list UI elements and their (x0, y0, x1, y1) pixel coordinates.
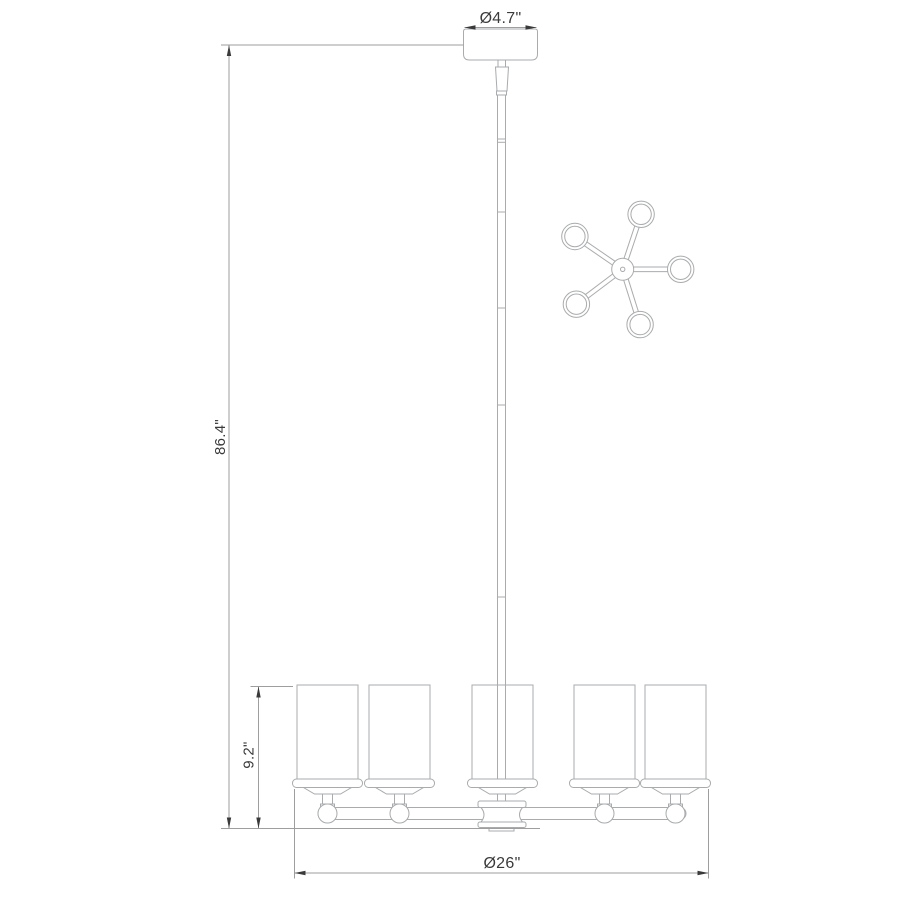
canopy (464, 29, 538, 60)
glass-shade (297, 685, 358, 779)
shade-fitter (581, 788, 629, 795)
down-rod (498, 95, 506, 801)
plan-shade-ring (628, 201, 654, 227)
dimension-label-fixture-diameter: Ø26" (483, 855, 520, 872)
arm-ball-joint (666, 804, 685, 823)
side-view-chandelier (293, 29, 711, 831)
plan-shade-ring (563, 291, 589, 317)
shade-band (570, 779, 640, 788)
shade-fitter (376, 788, 424, 795)
rod-collar (497, 91, 507, 95)
shade-2 (365, 685, 435, 808)
plan-center-hub (612, 258, 634, 280)
socket-stem (395, 794, 405, 805)
plan-shade-ring (627, 311, 653, 337)
hang-straight (496, 67, 509, 91)
hub-bottom-plate (478, 822, 526, 828)
arm-ball-joint (390, 804, 409, 823)
arrowhead-right (698, 871, 709, 875)
canopy-neck (498, 60, 506, 67)
shade-band (641, 779, 711, 788)
arm-ball-joint (318, 804, 337, 823)
hub-spool (481, 808, 523, 823)
dimension-label-overall-height: 86.4" (212, 419, 229, 455)
plan-shade-ring (668, 256, 694, 282)
center-hub (478, 801, 526, 831)
shade-5 (641, 685, 711, 808)
plan-shade-ring (562, 223, 588, 249)
arrowhead-up (227, 45, 231, 56)
arrowhead-up (256, 687, 260, 698)
dimension-label-shade-height: 9.2" (241, 741, 258, 768)
shade-4 (570, 685, 640, 808)
socket-stem (600, 794, 610, 805)
technical-drawing-canvas: Ø4.7" 86.4" 9.2" Ø26" (0, 0, 900, 900)
socket-stem (671, 794, 681, 805)
shade-fitter (652, 788, 700, 795)
shade-fitter (304, 788, 352, 795)
socket-stem (323, 794, 333, 805)
shade-fitter (479, 788, 527, 795)
shade-band (365, 779, 435, 788)
glass-shade (645, 685, 706, 779)
arrowhead-down (256, 818, 260, 829)
dimension-canopy-diameter: Ø4.7" (465, 10, 537, 30)
shade-band (293, 779, 363, 788)
arm-ball-joint (595, 804, 614, 823)
arrowhead-down (227, 818, 231, 829)
glass-shade (369, 685, 430, 779)
canopy-assembly (464, 29, 538, 95)
top-view-plan (562, 201, 694, 338)
glass-shade (574, 685, 635, 779)
shade-band (468, 779, 538, 788)
shade-1 (293, 685, 363, 808)
arrowhead-left (295, 871, 306, 875)
dimension-shade-height: 9.2" (241, 687, 294, 829)
hub-top-plate (478, 801, 526, 808)
dimension-overall-height: 86.4" (212, 45, 540, 829)
shade-3-center (468, 685, 538, 801)
dimension-label-canopy-diameter: Ø4.7" (480, 10, 522, 27)
glass-shade (472, 685, 533, 779)
